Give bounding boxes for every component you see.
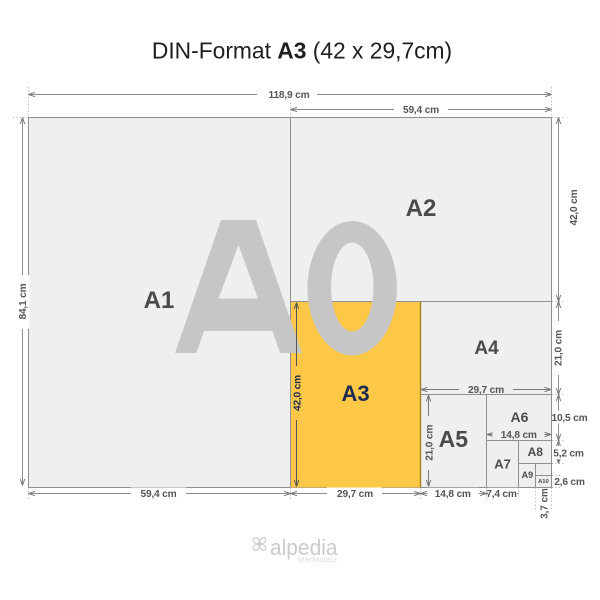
- svg-text:A1: A1: [144, 287, 175, 314]
- svg-text:84,1 cm: 84,1 cm: [18, 283, 29, 319]
- svg-text:42,0 cm: 42,0 cm: [569, 189, 580, 225]
- svg-text:29,7 cm: 29,7 cm: [468, 385, 504, 396]
- svg-text:Marktplatz: Marktplatz: [298, 555, 338, 564]
- svg-text:A9: A9: [522, 470, 534, 480]
- svg-text:A3: A3: [341, 381, 369, 406]
- svg-text:DIN-Format A3 (42 x 29,7cm): DIN-Format A3 (42 x 29,7cm): [152, 38, 452, 64]
- svg-text:5,2 cm: 5,2 cm: [553, 448, 584, 459]
- svg-text:3,7 cm: 3,7 cm: [539, 488, 550, 519]
- svg-text:A5: A5: [439, 426, 469, 452]
- svg-text:118,9 cm: 118,9 cm: [269, 90, 310, 101]
- svg-text:59,4 cm: 59,4 cm: [141, 489, 177, 500]
- svg-text:21,0 cm: 21,0 cm: [554, 330, 565, 366]
- svg-text:A2: A2: [406, 195, 437, 222]
- svg-text:A4: A4: [474, 338, 499, 359]
- svg-text:21,0 cm: 21,0 cm: [424, 425, 435, 461]
- svg-text:14,8 cm: 14,8 cm: [435, 489, 471, 500]
- svg-text:14,8 cm: 14,8 cm: [501, 430, 537, 441]
- svg-text:29,7 cm: 29,7 cm: [337, 489, 373, 500]
- svg-text:A7: A7: [494, 457, 511, 472]
- svg-text:A8: A8: [528, 445, 544, 459]
- svg-text:42,0 cm: 42,0 cm: [293, 375, 304, 411]
- svg-text:A10: A10: [538, 479, 549, 485]
- svg-text:7,4 cm: 7,4 cm: [486, 489, 517, 500]
- svg-text:59,4 cm: 59,4 cm: [403, 105, 439, 116]
- svg-text:A6: A6: [511, 409, 529, 425]
- svg-text:10,5 cm: 10,5 cm: [552, 413, 588, 424]
- svg-text:2,6 cm: 2,6 cm: [554, 477, 585, 488]
